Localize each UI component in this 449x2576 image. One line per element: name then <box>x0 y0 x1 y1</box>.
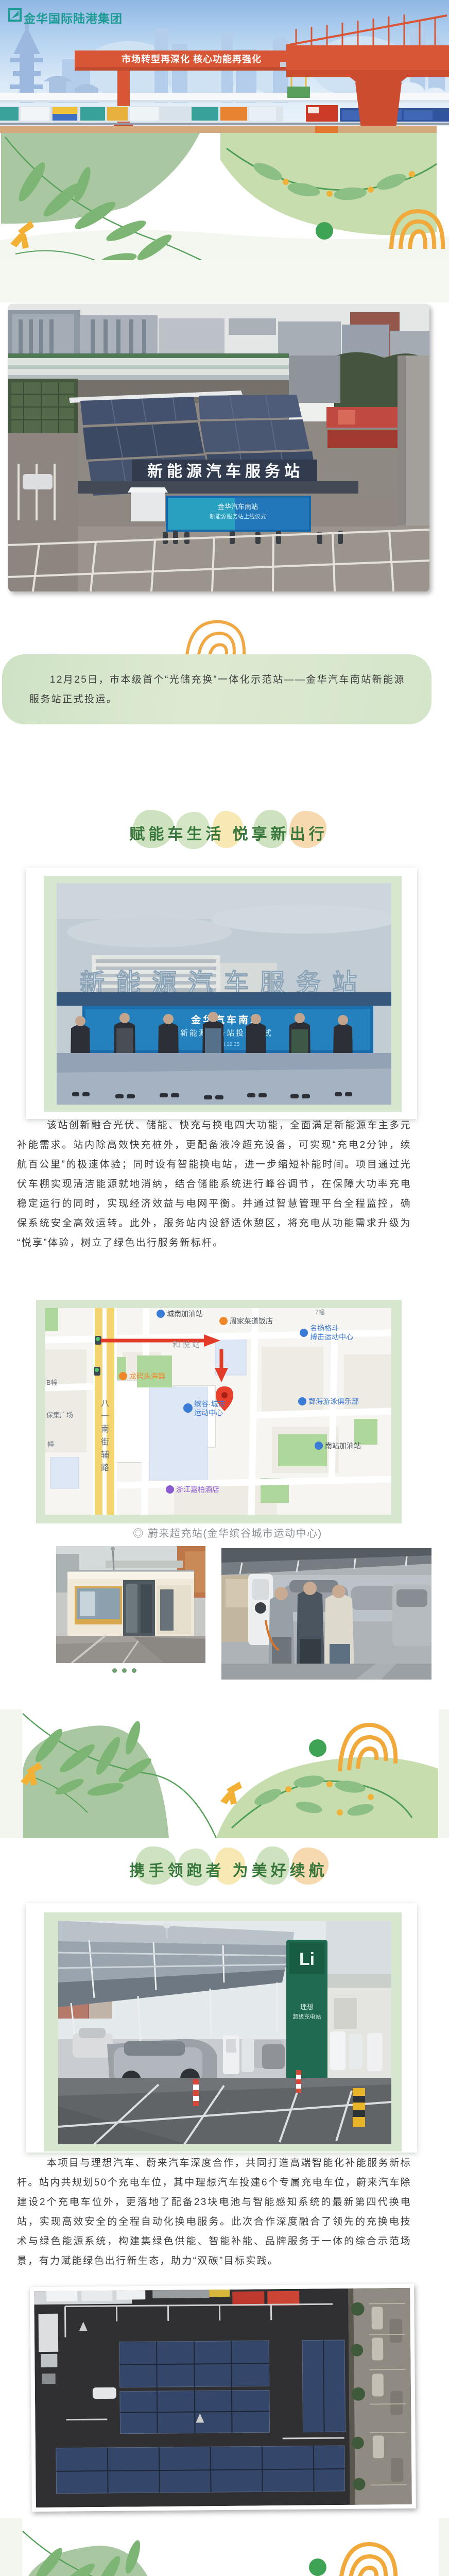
svg-text:南站加油站: 南站加油站 <box>325 1442 361 1450</box>
svg-text:浙江嘉柏酒店: 浙江嘉柏酒店 <box>176 1485 219 1494</box>
svg-text:街: 街 <box>101 1437 109 1447</box>
svg-text:理想: 理想 <box>300 2003 314 2011</box>
svg-text:搏击运动中心: 搏击运动中心 <box>310 1333 353 1341</box>
svg-text:运动中心: 运动中心 <box>194 1409 223 1417</box>
svg-text:市场转型再深化 核心功能再强化: 市场转型再深化 核心功能再强化 <box>122 54 262 64</box>
svg-text:新能源服务站上线仪式: 新能源服务站上线仪式 <box>210 513 266 520</box>
svg-text:周家菜道饭店: 周家菜道饭店 <box>230 1317 273 1325</box>
svg-text:路: 路 <box>101 1463 109 1472</box>
svg-text:龙码头海鲜: 龙码头海鲜 <box>129 1372 165 1380</box>
svg-text:辅: 辅 <box>101 1450 109 1460</box>
svg-text:保集广场: 保集广场 <box>46 1411 73 1419</box>
svg-text:鄄海游泳俱乐部: 鄄海游泳俱乐部 <box>308 1397 359 1405</box>
svg-text:城南加油站: 城南加油站 <box>167 1310 203 1318</box>
svg-text:金华汽车南站: 金华汽车南站 <box>218 503 258 511</box>
svg-text:缤谷·城市: 缤谷·城市 <box>194 1400 226 1408</box>
svg-text:Li: Li <box>299 1950 315 1969</box>
svg-text:新能源汽车服务站: 新能源汽车服务站 <box>147 463 304 480</box>
svg-text:B幢: B幢 <box>46 1379 58 1386</box>
svg-text:幢: 幢 <box>47 1440 54 1448</box>
svg-text:名扬格斗: 名扬格斗 <box>310 1324 339 1332</box>
svg-text:南: 南 <box>101 1425 109 1434</box>
svg-text:和悦站: 和悦站 <box>172 1341 202 1349</box>
svg-text:一: 一 <box>101 1412 109 1421</box>
svg-text:八: 八 <box>101 1399 109 1408</box>
svg-text:超级充电站: 超级充电站 <box>293 2013 321 2020</box>
svg-text:7幢: 7幢 <box>315 1308 325 1316</box>
